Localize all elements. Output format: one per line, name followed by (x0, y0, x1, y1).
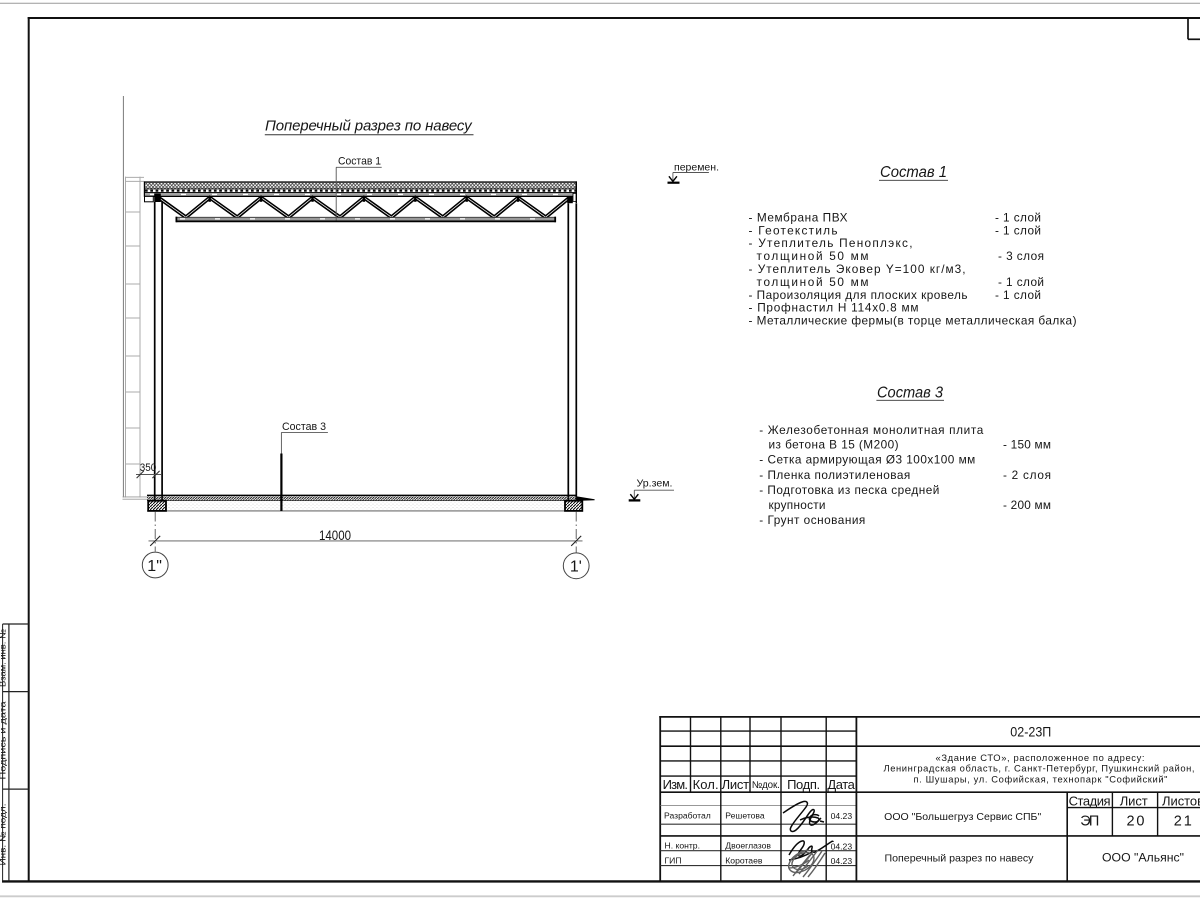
svg-text:Решетова: Решетова (725, 810, 765, 820)
svg-text:1": 1" (147, 558, 162, 575)
svg-text:- Утеплитель Эковер Y=100 кг/м: - Утеплитель Эковер Y=100 кг/м3, (749, 262, 966, 276)
svg-text:- Металлические фермы(в торце: - Металлические фермы(в торце металличес… (749, 314, 1077, 328)
svg-text:- Геотекстиль: - Геотекстиль (749, 223, 838, 237)
svg-text:- Мембрана ПВХ: - Мембрана ПВХ (749, 210, 848, 224)
svg-text:ООО "Альянс": ООО "Альянс" (1102, 851, 1184, 865)
svg-text:- Пленка полиэтиленовая: - Пленка полиэтиленовая (759, 468, 910, 482)
svg-text:крупности: крупности (769, 498, 826, 512)
svg-text:из бетона В 15 (М200): из бетона В 15 (М200) (769, 437, 899, 451)
svg-text:Подп.: Подп. (787, 777, 820, 792)
svg-text:- 1 слой: - 1 слой (995, 210, 1041, 224)
svg-text:Поперечный разрез по навесу: Поперечный разрез по навесу (885, 854, 1035, 865)
svg-text:Взам. инв. №: Взам. инв. № (0, 629, 8, 687)
svg-text:ЭП: ЭП (1080, 814, 1099, 830)
svg-text:«Здание СТО», расположенное по: «Здание СТО», расположенное по адресу: (936, 752, 1145, 763)
svg-text:- 1 слой: - 1 слой (995, 223, 1041, 237)
svg-text:Состав 1: Состав 1 (338, 155, 381, 167)
svg-text:Состав 1: Состав 1 (880, 164, 947, 181)
svg-text:- Утеплитель Пеноплэкс,: - Утеплитель Пеноплэкс, (749, 236, 913, 250)
svg-text:толщиной 50 мм: толщиной 50 мм (757, 275, 869, 289)
svg-text:ГИП: ГИП (665, 855, 682, 865)
svg-text:- 1 слой: - 1 слой (995, 288, 1041, 302)
svg-text:Разработал: Разработал (664, 810, 711, 820)
svg-text:Н. контр.: Н. контр. (665, 841, 700, 851)
svg-text:№док.: №док. (752, 780, 780, 791)
svg-text:толщиной 50 мм: толщиной 50 мм (757, 249, 869, 263)
svg-text:Поперечный разрез по навесу: Поперечный разрез по навесу (265, 118, 473, 135)
svg-text:14000: 14000 (319, 527, 351, 543)
svg-text:перемен.: перемен. (674, 161, 719, 173)
svg-text:- Профнастил Н 114х0.8 мм: - Профнастил Н 114х0.8 мм (749, 301, 919, 315)
svg-text:04.23: 04.23 (831, 856, 853, 866)
svg-text:Листов: Листов (1162, 793, 1200, 808)
svg-text:20: 20 (1127, 814, 1145, 830)
svg-text:Кол.: Кол. (693, 777, 719, 792)
svg-text:- Железобетонная монолитная п: - Железобетонная монолитная плита (759, 423, 983, 437)
svg-text:- 2 слоя: - 2 слоя (1003, 468, 1051, 482)
svg-text:Состав 3: Состав 3 (877, 384, 943, 401)
svg-text:1': 1' (570, 559, 582, 576)
svg-text:- 3 слоя: - 3 слоя (998, 249, 1044, 263)
svg-text:- 1 слой: - 1 слой (998, 275, 1044, 289)
svg-text:Ленинградская область, г. Санк: Ленинградская область, г. Санкт-Петербур… (884, 763, 1195, 774)
svg-text:- Сетка армирующая Ø3 100х100: - Сетка армирующая Ø3 100х100 мм (759, 452, 975, 466)
svg-text:Дата: Дата (827, 777, 855, 792)
svg-text:- 150 мм: - 150 мм (1003, 437, 1051, 451)
svg-text:Подпись и дата: Подпись и дата (0, 701, 8, 780)
svg-text:Инв. № подл.: Инв. № подл. (0, 804, 8, 866)
svg-text:- Пароизоляция для плоских кро: - Пароизоляция для плоских кровель (749, 288, 968, 302)
svg-text:21: 21 (1174, 814, 1192, 830)
svg-text:ООО "Большегруз Сервис СПБ": ООО "Большегруз Сервис СПБ" (884, 812, 1041, 823)
svg-text:Ур.зем.: Ур.зем. (637, 477, 673, 489)
svg-text:04.23: 04.23 (831, 841, 853, 851)
svg-text:Изм.: Изм. (663, 777, 688, 792)
svg-text:Коротаев: Коротаев (725, 855, 763, 865)
svg-text:- Подготовка из песка средней: - Подготовка из песка средней (759, 483, 939, 497)
svg-text:04.23: 04.23 (831, 811, 853, 821)
svg-text:Стадия: Стадия (1069, 793, 1111, 808)
svg-text:- Грунт основания: - Грунт основания (759, 513, 865, 527)
svg-text:Состав 3: Состав 3 (282, 421, 326, 433)
svg-text:- 200 мм: - 200 мм (1003, 498, 1051, 512)
svg-text:02-23П: 02-23П (1010, 725, 1051, 740)
svg-text:Лист: Лист (1120, 793, 1148, 808)
svg-text:Лист: Лист (722, 777, 750, 792)
svg-text:Двоеглазов: Двоеглазов (725, 841, 771, 851)
svg-text:п. Шушары, ул. Софийская, техн: п. Шушары, ул. Софийская, технопарк "Соф… (914, 773, 1168, 784)
